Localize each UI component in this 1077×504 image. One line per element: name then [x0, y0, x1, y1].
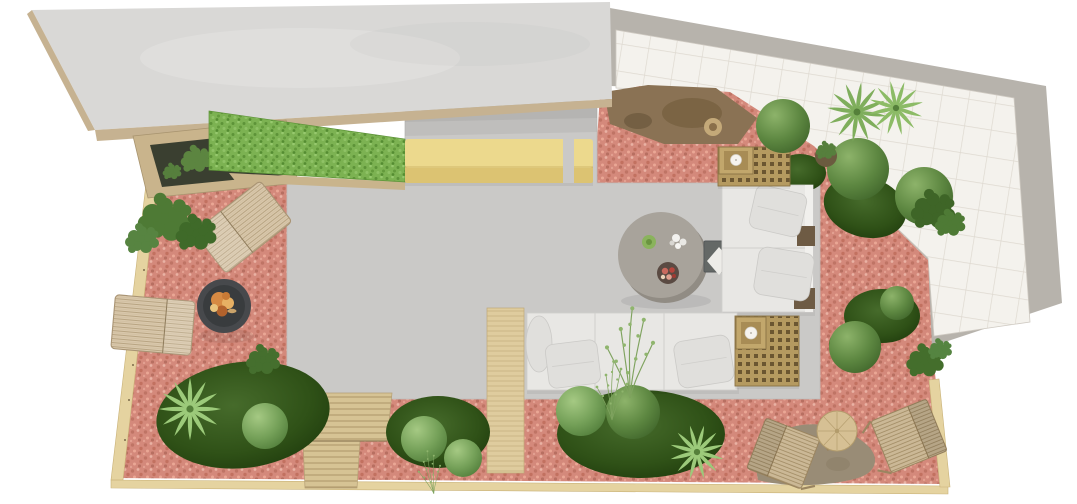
- rattan-lounger-2: [111, 295, 195, 356]
- topiary-ball: [606, 385, 660, 439]
- lattice-cube-top: [718, 147, 790, 189]
- sofa-vertical-arm: [722, 184, 815, 312]
- pillow: [673, 334, 736, 389]
- topiary-ball: [827, 138, 889, 200]
- pillow: [545, 339, 602, 389]
- candle-box: [719, 147, 753, 174]
- topiary-ball: [880, 286, 914, 320]
- lattice-cube-corner: [735, 316, 799, 389]
- candle-box: [736, 317, 766, 349]
- topiary-ball: [242, 403, 288, 449]
- small-pot: [704, 118, 722, 136]
- topiary-ball: [829, 321, 881, 373]
- timber-walkway: [487, 308, 524, 473]
- topiary-ball: [556, 386, 606, 436]
- topiary-ball: [401, 416, 447, 462]
- render-canvas: [0, 0, 1077, 504]
- rock: [624, 113, 652, 129]
- pillow: [753, 246, 816, 302]
- yellow-bench: [405, 139, 593, 186]
- topiary-ball: [756, 99, 810, 153]
- topiary-ball: [444, 439, 482, 477]
- bench-slot: [563, 139, 574, 183]
